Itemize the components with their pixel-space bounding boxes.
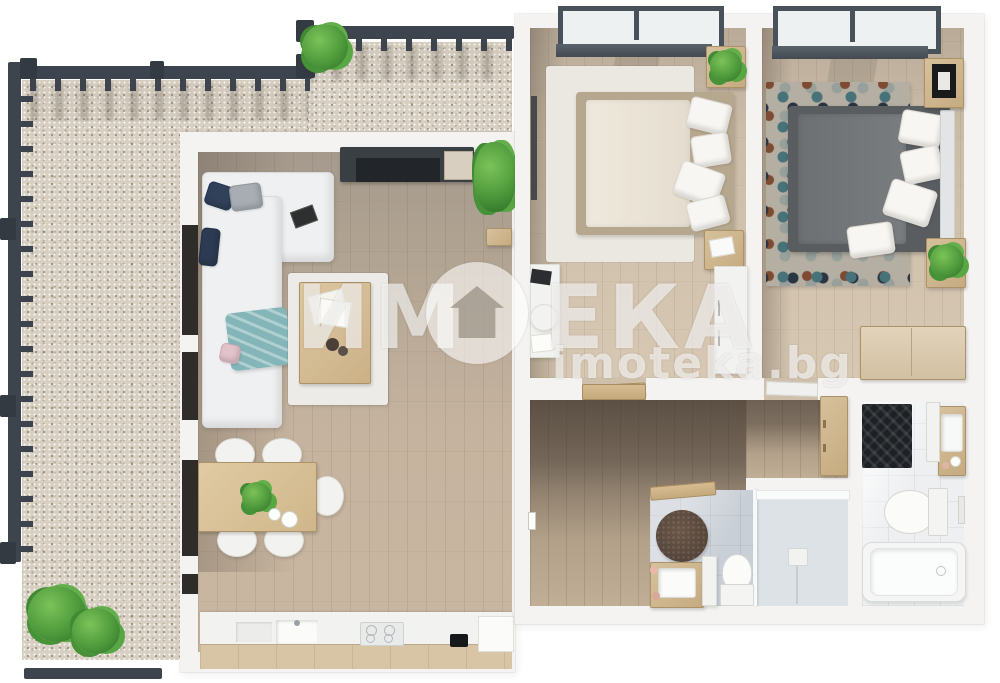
plant-stool [486,228,512,246]
sofa-pillow-pink [218,342,242,365]
soap-icon [942,462,949,469]
sofa-pillow-gray [228,182,263,212]
toilet2-tank [928,488,948,536]
radiator [531,96,537,200]
kitchen-cabinet-front [200,644,512,669]
burner-icon [366,634,375,643]
sofa-pillow-navy [198,227,221,267]
window-mullion [850,8,855,42]
railing-post [0,395,16,417]
railing-post [0,218,16,240]
terrace-door-glass [182,225,198,335]
nightstand-plant-icon [710,50,742,82]
papers [530,333,554,353]
window-mullion [634,8,639,40]
railing-post [20,58,37,79]
toilet1-tank [720,584,754,606]
shower-rail [756,490,850,500]
bedroom2-window-sill [772,46,928,59]
railing-post [0,542,16,564]
photo-frame-inner [938,72,950,90]
fridge [478,616,514,652]
terrace-plant-icon [72,608,120,654]
tv-screen [356,158,440,182]
bathroom2-door [926,402,940,462]
bathroom2-sink [941,414,963,452]
dresser-divider [911,328,912,376]
cabinet-handle [823,444,826,452]
soap-icon [650,566,658,574]
bedroom2-dresser [860,326,966,380]
burner-icon [384,634,393,643]
towel-rail [958,496,965,524]
table-plant-icon [242,482,272,512]
kitchen-recess [236,622,272,642]
bed2-pillow [846,221,896,259]
terrace-railing-bottom [24,668,162,679]
desk-chair [530,304,558,331]
laptop [530,269,552,286]
railing-post [150,61,164,79]
toilet2-bowl [884,490,934,534]
shower-head-icon [788,548,808,566]
terrace-plant-icon [302,24,348,70]
bathroom1-sink [658,568,696,598]
terrace-door-glass [182,574,198,594]
terrace-door-glass [182,460,198,556]
wardrobe-handle [718,300,720,316]
cup [268,508,281,521]
wardrobe-handle [718,330,720,346]
floor-plan: ИМ ЕКА imoteka.bg [0,0,1000,683]
living-plant-icon [474,142,516,212]
bathroom2-shower-mat [862,404,912,468]
bedroom1-wardrobe [714,266,748,374]
magazines [316,298,352,329]
bed1-duvet [586,100,690,227]
bathroom1-round-rug [656,510,708,562]
console-books [444,151,473,180]
bed2-headboard [940,110,955,250]
table-decor [338,346,348,356]
nightstand-plant-icon [930,244,964,278]
cabinet-handle [823,420,826,428]
drain-icon [936,566,946,576]
table-decor [326,338,339,351]
terrace-railing-balusters [20,72,33,552]
terrace-door-glass [182,352,198,420]
soap-icon [950,456,961,467]
bedroom1-window-sill [556,44,712,57]
entry-doormat [582,384,646,400]
cup [281,511,298,528]
terrace-railing-balusters [30,78,310,91]
door-handle-icon [528,512,536,530]
bathroom1-cabinet [702,556,717,606]
faucet-icon [294,620,300,626]
soap-icon [652,592,660,600]
terrace-gravel [22,137,182,660]
coffee-machine [450,634,468,647]
bedroom2-door [766,381,818,397]
bed2-pillow [897,109,944,150]
hall-cabinet [820,396,848,476]
